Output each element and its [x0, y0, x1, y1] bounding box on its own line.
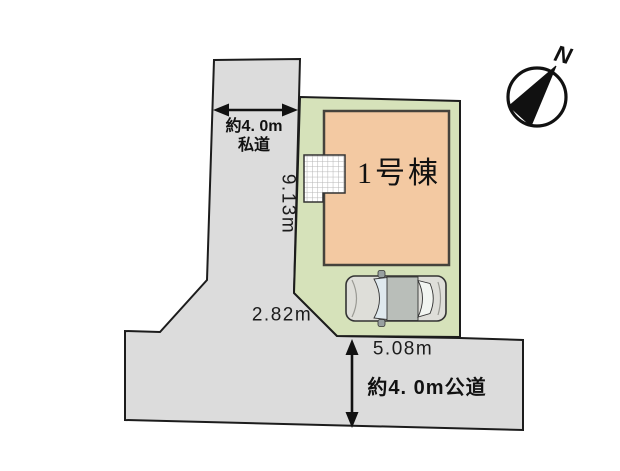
car-icon [346, 271, 446, 327]
site-plan-diagram: 約4. 0m 私道 9.13m 2.82m 5.08m 約4. 0m公道 1号棟… [0, 0, 620, 471]
public-road-label: 約4. 0m公道 [367, 378, 486, 398]
private-road-width-label: 約4. 0m [226, 119, 283, 135]
north-compass-icon [508, 66, 566, 126]
private-road-type-label: 私道 [238, 138, 270, 154]
edge-dimension-282: 2.82m [252, 306, 312, 325]
site-plan-drawing [0, 0, 620, 471]
frontage-dimension-508: 5.08m [373, 340, 433, 359]
frontage-dimension-913: 9.13m [279, 174, 298, 234]
building-number-label: 1号棟 [357, 159, 441, 189]
